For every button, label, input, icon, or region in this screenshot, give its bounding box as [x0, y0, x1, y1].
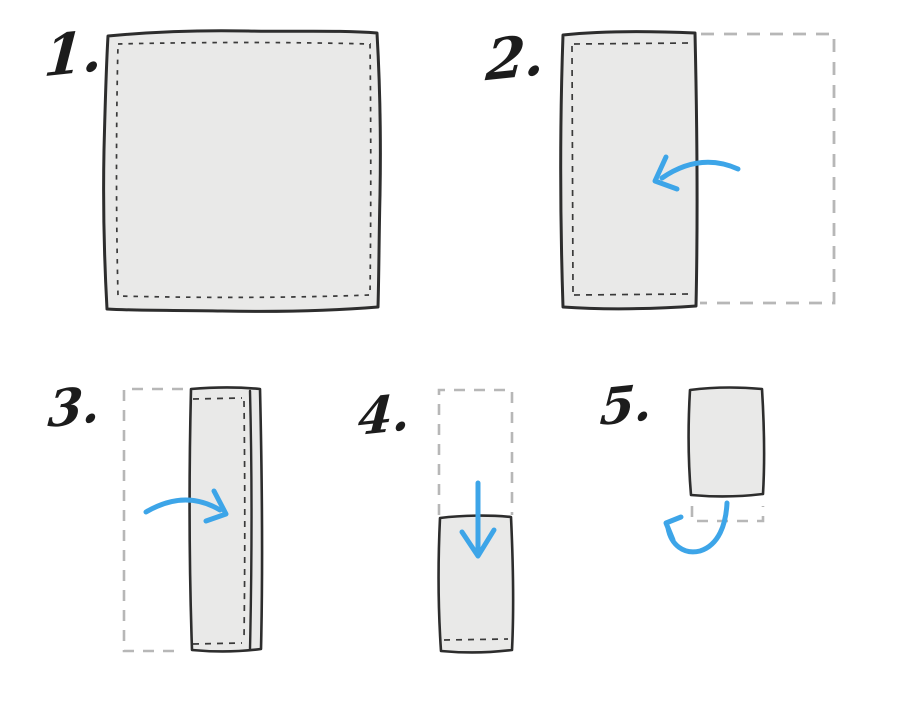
step-4-figure	[439, 390, 513, 652]
step-3-label: 3.	[46, 379, 101, 435]
step-2-figure	[561, 32, 834, 309]
napkin-folding-diagram: 1. 2. 3. 4. 5.	[0, 0, 900, 721]
step-3-figure	[124, 388, 262, 652]
tuck-under-arrow-icon	[668, 503, 727, 552]
step-2-label: 2.	[484, 27, 546, 90]
cloth-final	[689, 388, 764, 497]
folding-steps-illustration	[0, 0, 900, 721]
step-1-figure	[104, 31, 381, 312]
cloth-square	[104, 31, 381, 312]
step-5-figure	[666, 388, 764, 552]
ghost-outline	[124, 389, 183, 651]
step-1-label: 1.	[42, 23, 104, 86]
step-5-label: 5.	[598, 377, 653, 433]
step-4-label: 4.	[356, 387, 411, 443]
ghost-outline	[700, 34, 834, 303]
